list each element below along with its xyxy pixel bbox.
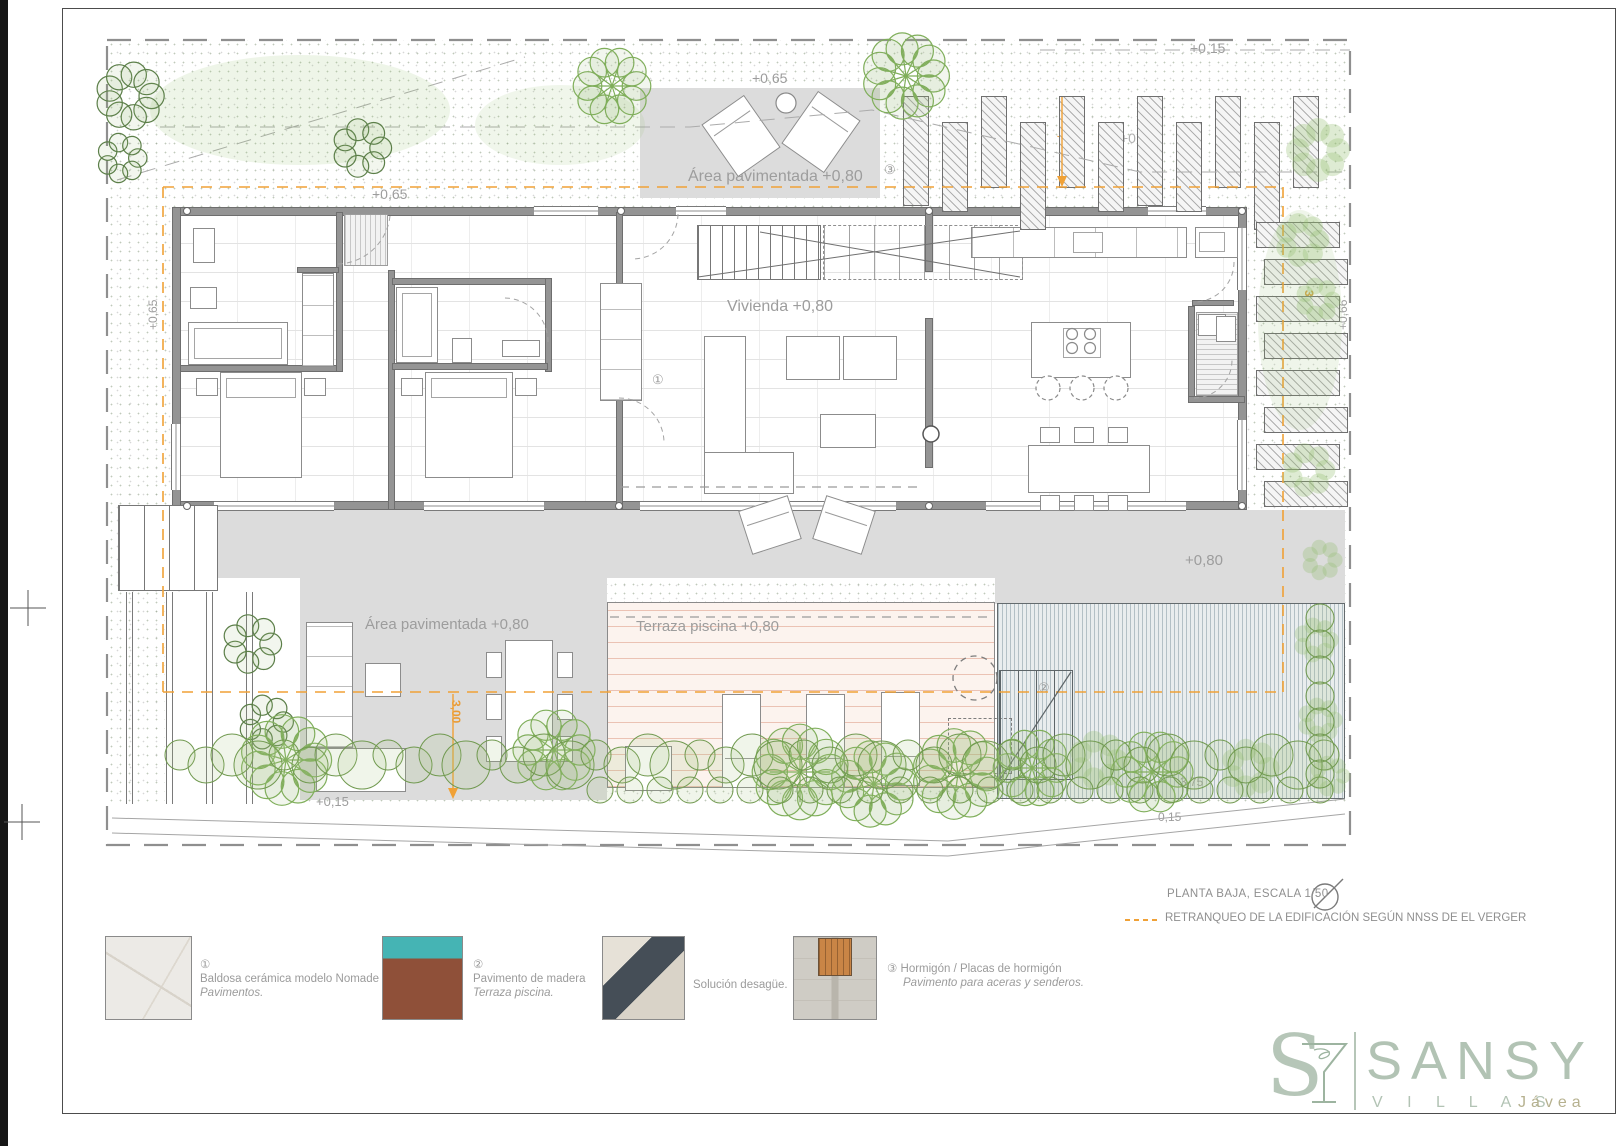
dim-015: 0,15	[1158, 810, 1181, 824]
kitchen-sink	[1073, 232, 1103, 253]
wall	[388, 270, 395, 510]
concrete-paver	[1256, 222, 1340, 248]
concrete-paver	[1137, 96, 1163, 206]
sun-lounger	[881, 692, 920, 786]
window	[214, 501, 334, 511]
logo-city: Jávea	[1518, 1094, 1586, 1112]
coffee-table	[820, 414, 876, 448]
retranqueo-note: RETRANQUEO DE LA EDIFICACIÓN SEGÚN NNSS …	[1165, 912, 1526, 924]
logo-monogram: S	[1266, 1024, 1324, 1108]
bathtub-inner	[194, 328, 282, 359]
sink	[193, 228, 215, 263]
legend-thumb-concrete-door	[818, 938, 852, 976]
chair	[1074, 495, 1094, 511]
legend-caption-3: Solución desagüe.	[693, 978, 788, 992]
label-level-065-topleft: +0,65	[372, 186, 407, 202]
chair	[1040, 427, 1060, 443]
window	[534, 206, 598, 216]
concrete-paver	[981, 96, 1007, 188]
outdoor-counter	[316, 748, 406, 792]
label-area-pavimentada-top: Área pavimentada +0,80	[688, 168, 863, 186]
washer	[1216, 316, 1236, 342]
shower-inner	[402, 293, 432, 357]
chair	[557, 736, 573, 762]
label-level-080: +0,80	[1185, 552, 1223, 569]
window	[1237, 228, 1247, 290]
concrete-paver	[1256, 296, 1340, 322]
chair	[557, 694, 573, 720]
nightstand	[401, 378, 423, 396]
wall	[616, 396, 623, 510]
concrete-paver	[1264, 259, 1348, 285]
armchair	[786, 336, 840, 380]
label-level-015-bottom: +0,15	[316, 794, 349, 809]
label-vivienda: Vivienda +0,80	[727, 298, 833, 316]
wall	[336, 212, 343, 372]
concrete-paver	[1293, 96, 1319, 188]
pool-steps	[999, 670, 1073, 780]
outdoor-kitchen	[306, 622, 353, 748]
pillow	[226, 378, 296, 398]
concrete-paver	[1059, 96, 1085, 188]
pergola-post	[126, 592, 133, 804]
concrete-paver	[1264, 407, 1348, 433]
dim-375: 3,75	[1180, 775, 1203, 789]
wardrobe	[302, 273, 334, 367]
logo-divider	[1354, 1032, 1356, 1110]
pergola-post	[246, 592, 253, 804]
concrete-paver	[1098, 122, 1124, 212]
legend-caption-1: ① Baldosa cerámica modelo Nomade Pavimen…	[200, 958, 379, 1000]
label-terraza-piscina: Terraza piscina +0,80	[636, 618, 779, 635]
marker-1: ①	[652, 372, 664, 388]
wall	[925, 318, 933, 468]
concrete-paver	[1176, 122, 1202, 212]
label-level-065-pergola: +0,65	[752, 70, 787, 86]
terrace-right-extension	[995, 510, 1345, 604]
wall	[1188, 306, 1195, 402]
deck-table	[625, 746, 672, 791]
marker-3: ③	[884, 162, 896, 178]
chair	[1108, 495, 1128, 511]
outdoor-unit	[365, 663, 401, 697]
bench	[190, 287, 217, 309]
wall	[1192, 300, 1234, 306]
side-walkway	[165, 578, 305, 802]
wall	[392, 363, 548, 370]
chair	[1108, 427, 1128, 443]
wall	[1188, 396, 1245, 403]
window	[1237, 420, 1247, 490]
concrete-paver	[1256, 370, 1340, 396]
pillow	[431, 378, 507, 398]
toilet	[452, 338, 472, 363]
wardrobe	[600, 283, 642, 401]
legend-caption-4: ③ Hormigón / Placas de hormigón Paviment…	[887, 962, 1084, 990]
nightstand	[515, 378, 537, 396]
sink	[1199, 232, 1225, 252]
dining-table	[1028, 445, 1150, 493]
chair	[557, 652, 573, 678]
concrete-paver	[1264, 333, 1348, 359]
sink	[502, 340, 540, 357]
pergola-post	[166, 592, 173, 804]
sun-lounger	[722, 694, 761, 788]
concrete-paver	[903, 96, 929, 206]
concrete-paver	[1264, 481, 1348, 507]
chair	[486, 736, 502, 762]
label-level-065-left: +0,65	[146, 300, 160, 330]
pergola-post	[206, 592, 213, 804]
window	[424, 501, 544, 511]
legend-thumb-wood-deck	[382, 936, 463, 1020]
hob	[1063, 328, 1101, 358]
chair	[1074, 427, 1094, 443]
plan-title: PLANTA BAJA, ESCALA 1/50	[1167, 888, 1329, 900]
legend-thumb-tile	[105, 936, 192, 1020]
chair	[486, 694, 502, 720]
sun-lounger	[806, 694, 845, 788]
wall	[392, 278, 552, 285]
label-level-015-top: +0,15	[1190, 40, 1225, 56]
staircase	[697, 225, 821, 280]
armchair	[843, 336, 897, 380]
legend-thumb-drain	[602, 936, 685, 1020]
closet	[344, 214, 388, 266]
concrete-paver	[1254, 122, 1280, 230]
sheet: Área pavimentada +0,80 ③ Vivienda +0,80 …	[0, 0, 1624, 1146]
label-area-pavimentada-left: Área pavimentada +0,80	[365, 616, 529, 633]
concrete-paver	[1020, 122, 1046, 230]
legend-caption-2: ② Pavimento de madera Terraza piscina.	[473, 958, 586, 1000]
floor-plan: Área pavimentada +0,80 ③ Vivienda +0,80 …	[0, 0, 1624, 1146]
wall	[545, 278, 552, 372]
concrete-paver	[1215, 96, 1241, 188]
window	[171, 424, 181, 490]
dim-300-bottom: 3,00	[449, 700, 463, 723]
concrete-paver	[942, 122, 968, 212]
nightstand	[196, 378, 218, 396]
concrete-paver	[1256, 444, 1340, 470]
outdoor-table	[505, 640, 553, 762]
chair	[486, 652, 502, 678]
window	[676, 206, 726, 216]
logo-name: SANSY	[1366, 1030, 1594, 1092]
chair	[1040, 495, 1060, 511]
entry-steps	[118, 505, 218, 591]
nightstand	[304, 378, 326, 396]
brand-logo: S SANSY V I L L A S Jávea	[1266, 1030, 1618, 1126]
sofa	[704, 452, 794, 494]
